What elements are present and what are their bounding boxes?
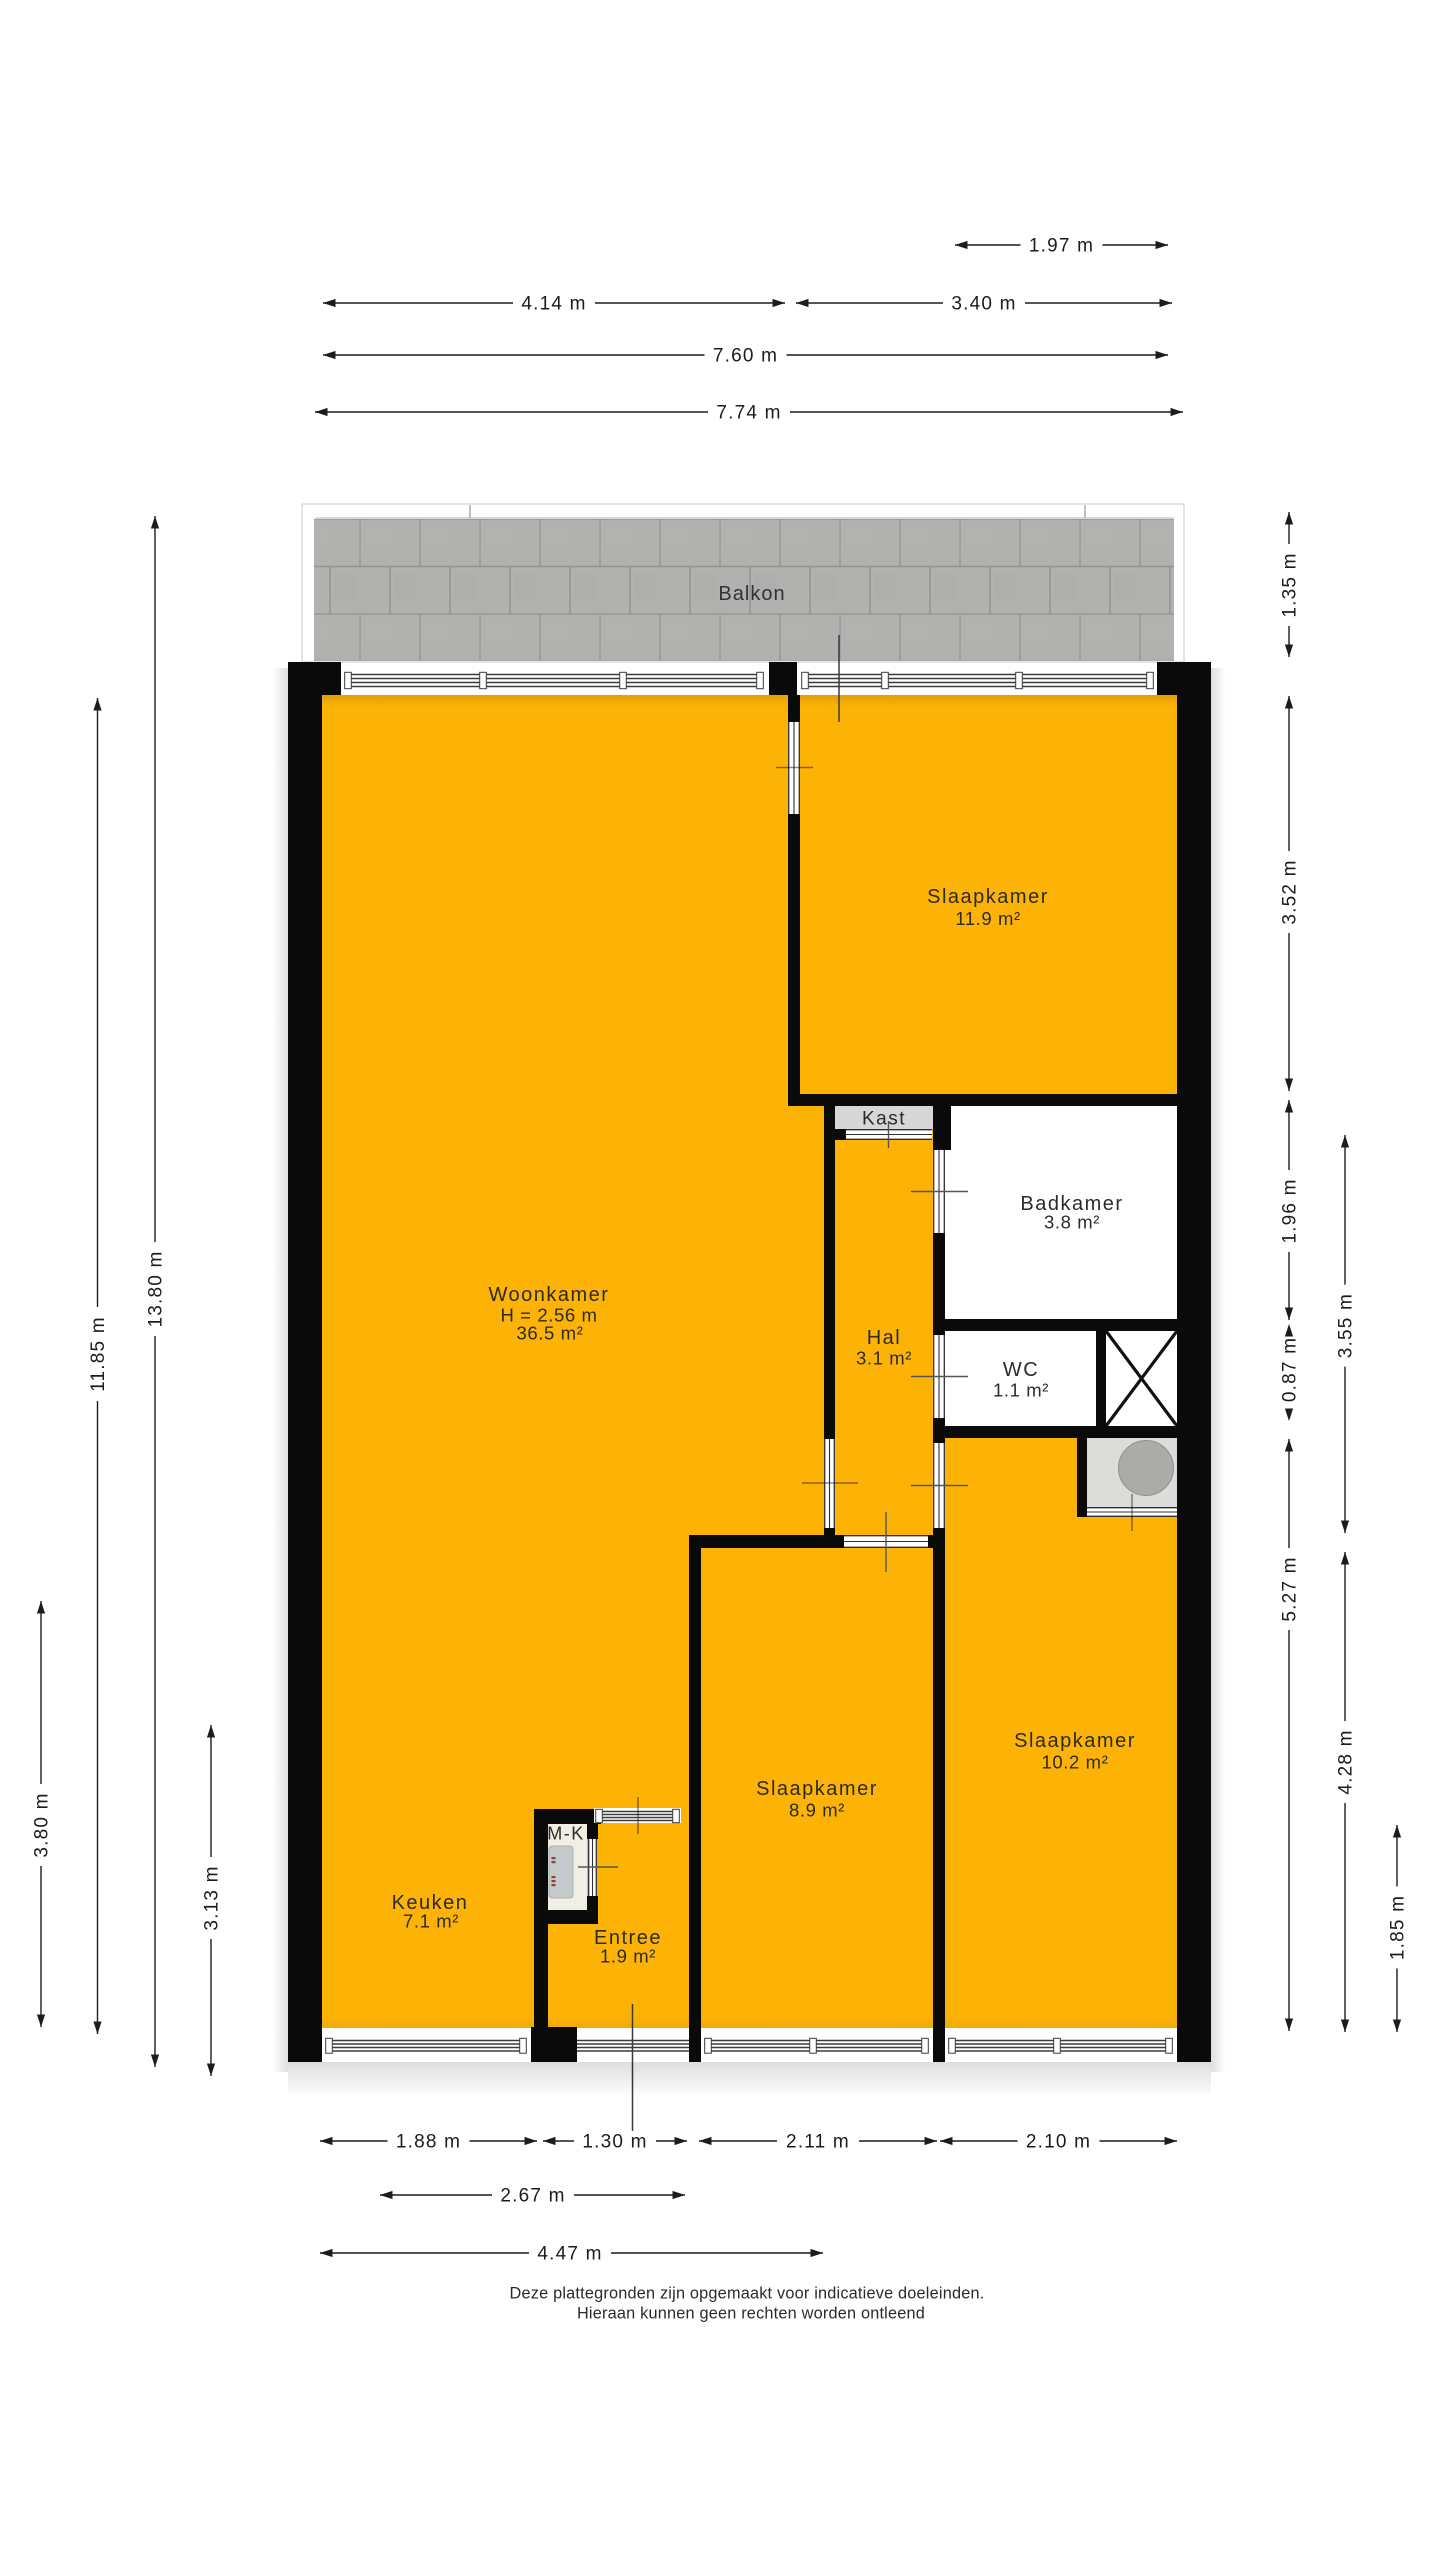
svg-text:7.74 m: 7.74 m [716, 403, 781, 424]
svg-text:11.9 m²: 11.9 m² [955, 908, 1021, 929]
svg-text:Hieraan kunnen geen rechten wo: Hieraan kunnen geen rechten worden ontle… [577, 2305, 925, 2323]
svg-text:3.40 m: 3.40 m [951, 294, 1016, 315]
svg-text:1.35 m: 1.35 m [1280, 552, 1301, 617]
svg-text:1.88 m: 1.88 m [396, 2132, 461, 2153]
svg-text:2.10 m: 2.10 m [1026, 2132, 1091, 2153]
svg-text:1.85 m: 1.85 m [1388, 1895, 1409, 1960]
svg-text:3.80 m: 3.80 m [32, 1792, 53, 1857]
svg-text:Slaapkamer: Slaapkamer [756, 1778, 878, 1800]
svg-text:5.27 m: 5.27 m [1280, 1556, 1301, 1621]
svg-text:Slaapkamer: Slaapkamer [1014, 1730, 1136, 1752]
svg-text:7.60 m: 7.60 m [713, 346, 778, 367]
svg-text:7.1 m²: 7.1 m² [403, 1910, 459, 1931]
svg-text:2.11 m: 2.11 m [786, 2132, 850, 2153]
svg-text:3.13 m: 3.13 m [202, 1865, 223, 1930]
svg-text:3.1 m²: 3.1 m² [856, 1347, 912, 1368]
svg-text:13.80 m: 13.80 m [146, 1250, 167, 1327]
svg-text:0.87 m: 0.87 m [1280, 1337, 1301, 1402]
svg-text:Kast: Kast [862, 1109, 906, 1130]
svg-text:Slaapkamer: Slaapkamer [927, 886, 1049, 908]
svg-text:WC: WC [1003, 1359, 1039, 1381]
svg-text:M-K: M-K [547, 1823, 585, 1843]
svg-text:11.85 m: 11.85 m [88, 1316, 109, 1392]
svg-text:3.55 m: 3.55 m [1336, 1293, 1357, 1358]
svg-text:Deze plattegronden zijn opgema: Deze plattegronden zijn opgemaakt voor i… [510, 2285, 985, 2303]
svg-text:36.5 m²: 36.5 m² [517, 1322, 584, 1343]
svg-text:4.47 m: 4.47 m [537, 2244, 602, 2265]
svg-text:1.96 m: 1.96 m [1280, 1178, 1301, 1243]
svg-text:Woonkamer: Woonkamer [489, 1284, 610, 1306]
svg-text:3.8 m²: 3.8 m² [1044, 1211, 1100, 1232]
svg-text:1.30 m: 1.30 m [582, 2132, 647, 2153]
svg-text:10.2 m²: 10.2 m² [1042, 1751, 1109, 1772]
svg-text:1.9 m²: 1.9 m² [600, 1945, 656, 1966]
svg-text:Hal: Hal [867, 1327, 902, 1349]
svg-text:8.9 m²: 8.9 m² [789, 1799, 845, 1820]
svg-text:3.52 m: 3.52 m [1280, 859, 1301, 924]
svg-text:Balkon: Balkon [718, 583, 785, 605]
svg-text:1.97 m: 1.97 m [1029, 236, 1094, 257]
svg-text:2.67 m: 2.67 m [500, 2186, 565, 2207]
svg-text:4.14 m: 4.14 m [521, 294, 586, 315]
svg-text:1.1 m²: 1.1 m² [993, 1379, 1049, 1400]
svg-text:4.28 m: 4.28 m [1336, 1729, 1357, 1794]
